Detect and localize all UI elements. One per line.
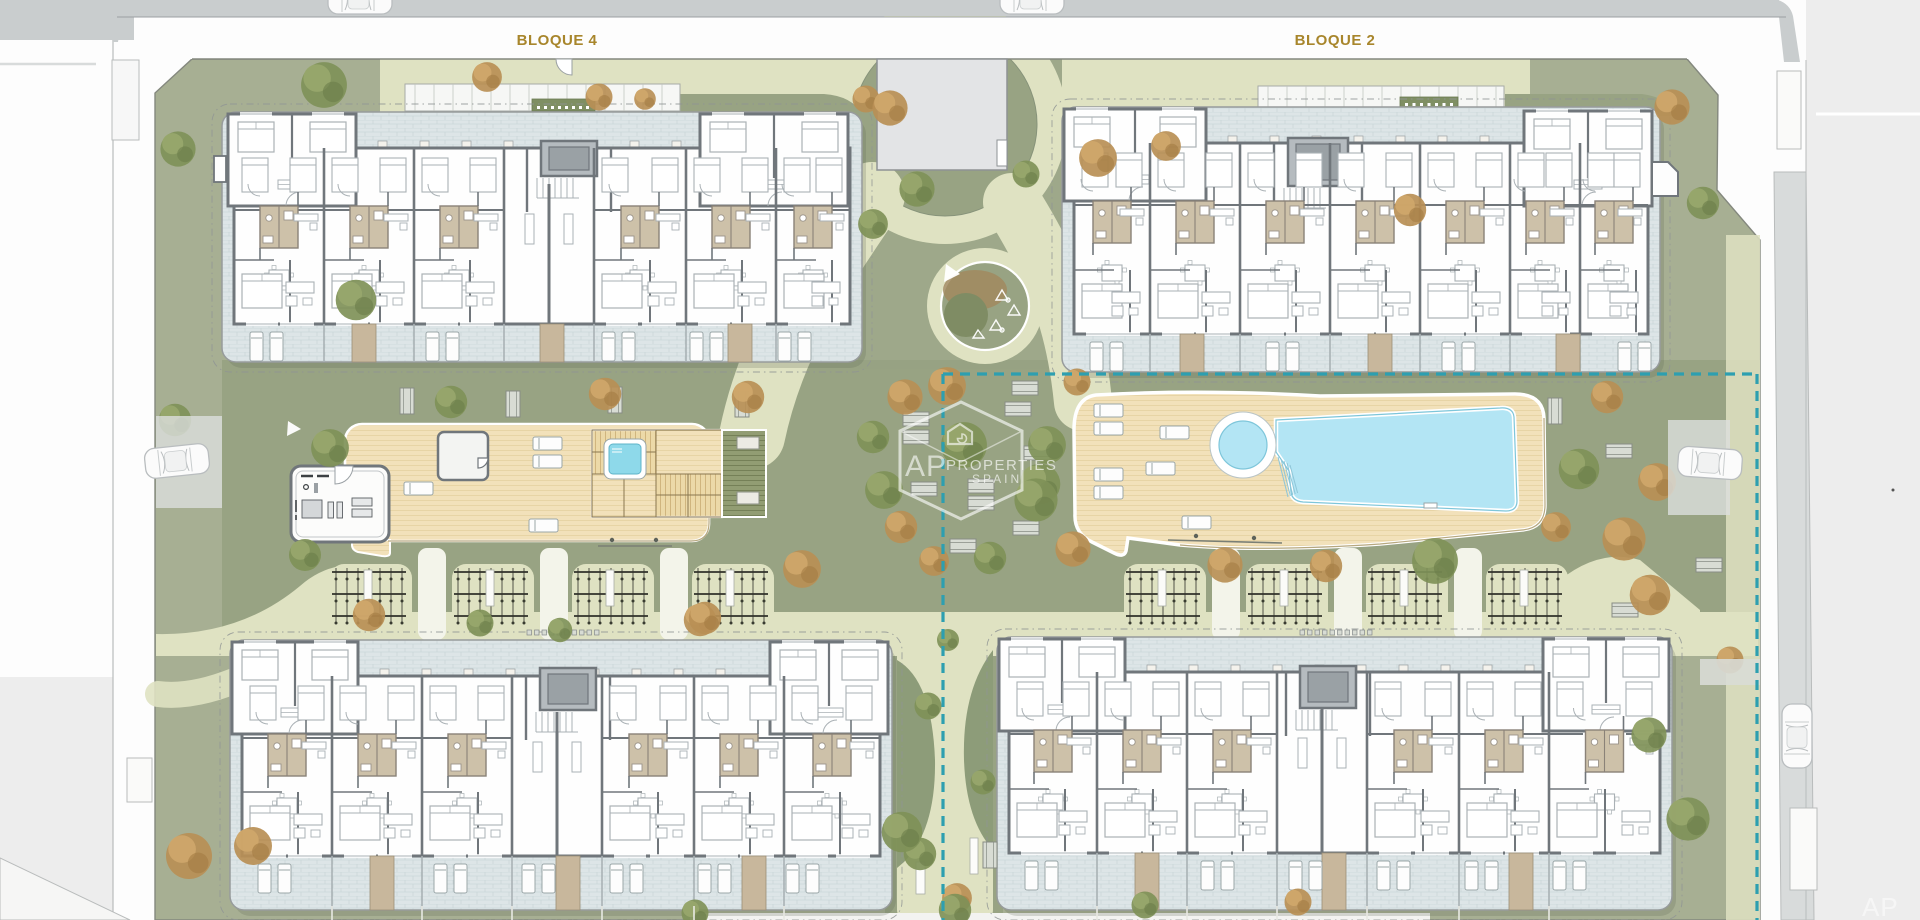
svg-text:SPAIN: SPAIN xyxy=(972,472,1022,486)
svg-text:BLOQUE 4: BLOQUE 4 xyxy=(517,32,598,49)
svg-text:BLOQUE 2: BLOQUE 2 xyxy=(1295,32,1376,49)
svg-text:AP: AP xyxy=(1862,892,1899,920)
svg-text:AP: AP xyxy=(905,450,947,483)
